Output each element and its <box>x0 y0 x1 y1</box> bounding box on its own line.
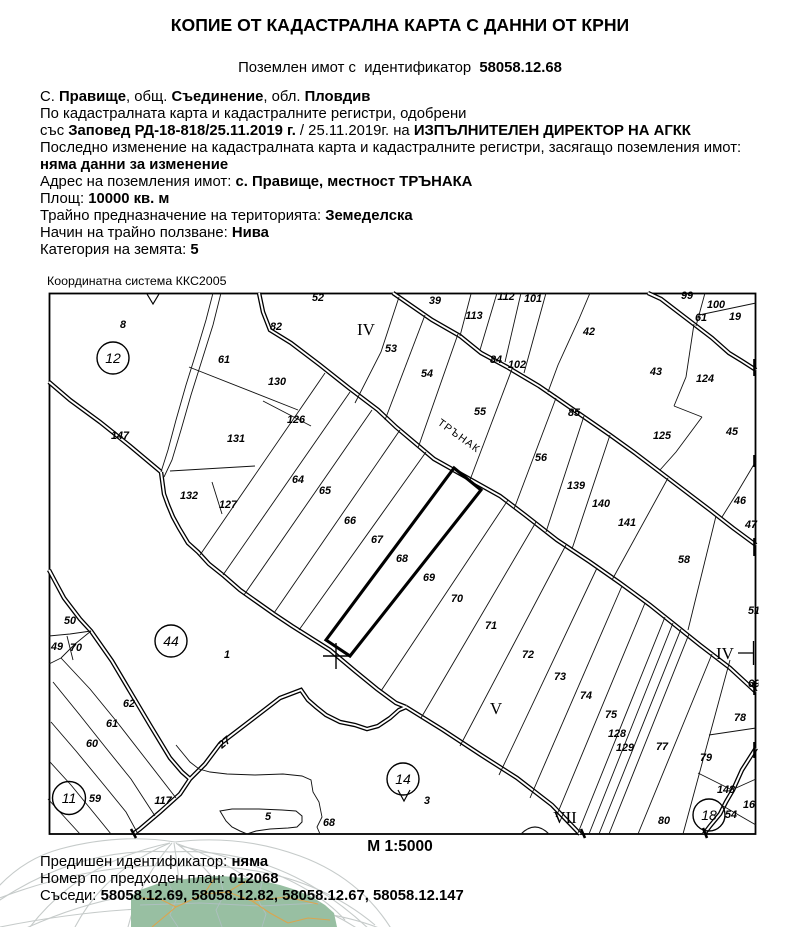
svg-text:101: 101 <box>524 293 542 305</box>
svg-text:99: 99 <box>681 290 693 302</box>
svg-text:52: 52 <box>312 292 324 304</box>
svg-text:141: 141 <box>618 517 636 529</box>
svg-text:62: 62 <box>123 698 135 710</box>
svg-text:132: 132 <box>180 490 198 502</box>
svg-text:59: 59 <box>89 793 101 805</box>
svg-text:85: 85 <box>568 407 581 419</box>
svg-text:54: 54 <box>725 809 737 821</box>
svg-text:46: 46 <box>733 495 747 507</box>
svg-text:125: 125 <box>653 430 672 442</box>
svg-text:129: 129 <box>616 742 634 754</box>
svg-text:18: 18 <box>701 807 717 823</box>
svg-text:45: 45 <box>725 426 739 438</box>
svg-text:131: 131 <box>227 433 245 445</box>
svg-text:19: 19 <box>729 311 741 323</box>
svg-text:5: 5 <box>265 811 272 823</box>
svg-text:61: 61 <box>695 312 707 324</box>
svg-text:61: 61 <box>106 718 118 730</box>
svg-text:43: 43 <box>649 366 662 378</box>
svg-text:3: 3 <box>424 795 430 807</box>
svg-text:1: 1 <box>224 649 230 661</box>
svg-text:139: 139 <box>567 480 585 492</box>
svg-text:84: 84 <box>490 354 502 366</box>
svg-text:11: 11 <box>62 790 77 806</box>
svg-text:50: 50 <box>64 615 76 627</box>
svg-text:12: 12 <box>105 350 121 366</box>
svg-text:82: 82 <box>270 321 282 333</box>
svg-text:71: 71 <box>485 620 497 632</box>
svg-text:70: 70 <box>70 642 82 654</box>
svg-text:53: 53 <box>385 343 397 355</box>
svg-text:124: 124 <box>696 373 714 385</box>
svg-text:127: 127 <box>219 499 238 511</box>
svg-text:67: 67 <box>371 534 384 546</box>
svg-text:69: 69 <box>423 572 435 584</box>
svg-text:56: 56 <box>535 452 548 464</box>
svg-text:49: 49 <box>50 641 63 653</box>
svg-text:74: 74 <box>580 690 592 702</box>
svg-text:68: 68 <box>396 553 408 565</box>
svg-text:102: 102 <box>508 359 526 371</box>
svg-text:IV: IV <box>716 644 735 663</box>
svg-text:16: 16 <box>743 799 756 811</box>
svg-text:79: 79 <box>700 752 712 764</box>
svg-text:8: 8 <box>120 319 126 331</box>
svg-text:65: 65 <box>319 485 332 497</box>
svg-text:130: 130 <box>268 376 286 388</box>
svg-text:61: 61 <box>218 354 230 366</box>
svg-text:75: 75 <box>605 709 618 721</box>
svg-text:44: 44 <box>163 633 179 649</box>
svg-text:69: 69 <box>748 678 760 690</box>
svg-text:IV: IV <box>357 320 376 339</box>
svg-text:117: 117 <box>154 795 172 807</box>
svg-text:113: 113 <box>465 310 482 322</box>
svg-text:147: 147 <box>111 430 130 442</box>
svg-text:ТРЪНАК: ТРЪНАК <box>435 417 482 456</box>
svg-text:39: 39 <box>429 295 441 307</box>
svg-text:70: 70 <box>451 593 463 605</box>
svg-text:42: 42 <box>582 326 595 338</box>
svg-text:64: 64 <box>292 474 304 486</box>
svg-text:68: 68 <box>323 817 335 829</box>
svg-text:72: 72 <box>522 649 534 661</box>
svg-text:51: 51 <box>748 605 760 617</box>
svg-text:78: 78 <box>734 712 746 724</box>
svg-text:58: 58 <box>678 554 690 566</box>
svg-text:47: 47 <box>744 519 758 531</box>
svg-text:55: 55 <box>474 406 487 418</box>
svg-text:VII: VII <box>553 808 577 827</box>
svg-text:54: 54 <box>421 368 433 380</box>
svg-text:128: 128 <box>608 728 626 740</box>
svg-text:77: 77 <box>656 741 669 753</box>
svg-text:112: 112 <box>497 291 514 303</box>
svg-text:100: 100 <box>707 299 725 311</box>
svg-text:126: 126 <box>287 414 306 426</box>
svg-text:14: 14 <box>395 771 411 787</box>
svg-text:60: 60 <box>86 738 98 750</box>
svg-text:148: 148 <box>717 784 735 796</box>
svg-text:140: 140 <box>592 498 610 510</box>
svg-text:66: 66 <box>344 515 357 527</box>
svg-text:80: 80 <box>658 815 670 827</box>
svg-text:73: 73 <box>554 671 566 683</box>
svg-text:V: V <box>490 699 503 718</box>
